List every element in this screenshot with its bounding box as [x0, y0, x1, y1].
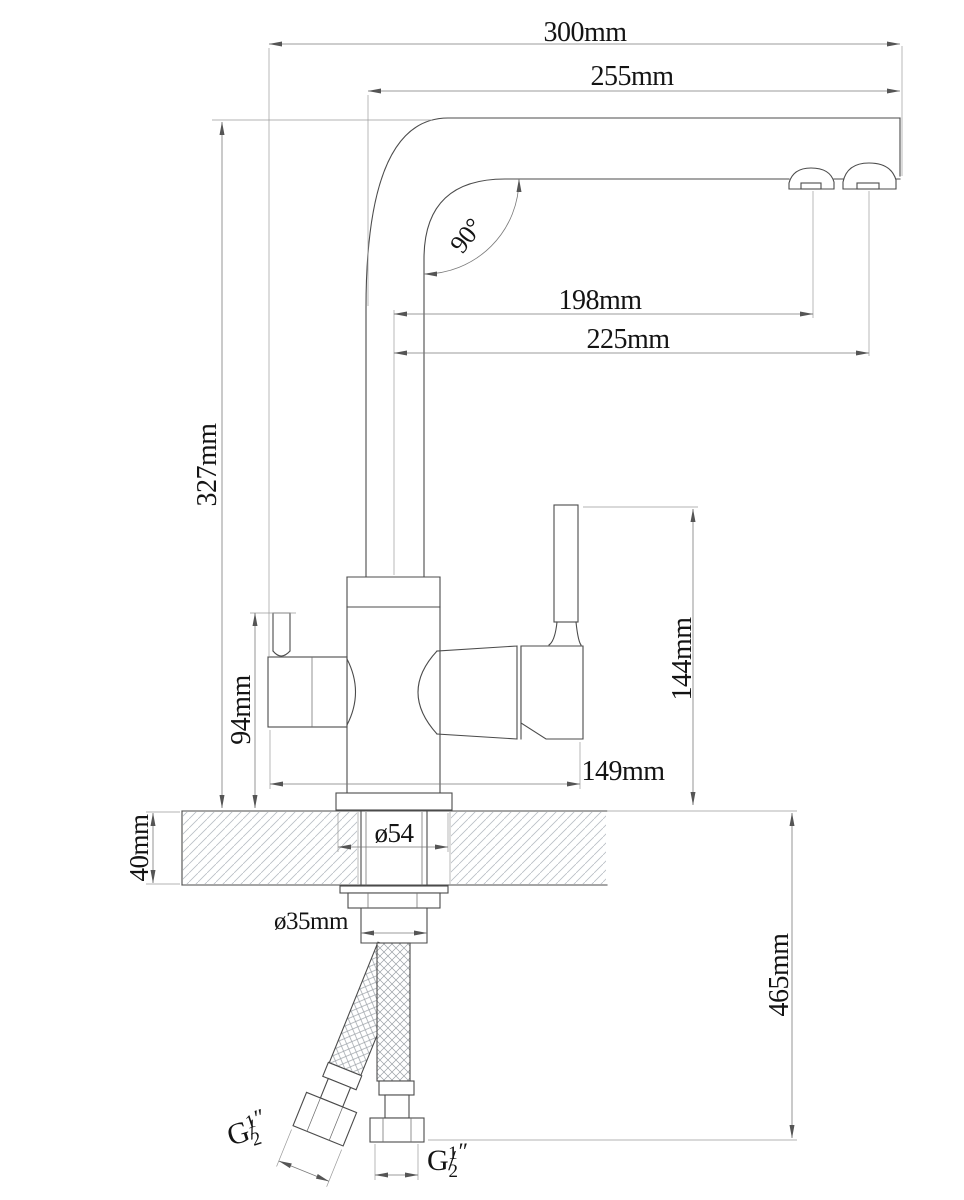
thread-left-denominator: 2	[249, 1128, 264, 1151]
filter-lever-base-curve	[273, 651, 290, 656]
handle-lever	[554, 505, 578, 622]
dim-text-body-span: 149mm	[581, 756, 665, 787]
filter-valve-body	[268, 657, 347, 727]
ext-lines-body-span	[270, 730, 580, 789]
hose-right-neck	[385, 1095, 409, 1118]
handle-cone	[437, 646, 521, 739]
thread-left-dim-line	[279, 1161, 329, 1181]
dim-text-hose-drop: 465mm	[764, 933, 795, 1017]
body-cap-band	[347, 577, 440, 607]
thread-right-unit: ″	[458, 1139, 467, 1164]
dim-text-overall-width: 300mm	[543, 17, 627, 48]
hose-right-collar	[379, 1081, 414, 1095]
dim-text-spout-angle: 90°	[444, 213, 488, 258]
thread-size-right: G1/2″	[427, 1139, 468, 1182]
aerator-main-outlet	[843, 163, 896, 189]
dimension-annotations: 300mm 255mm 90° 198mm 225mm 327mm 94mm 1…	[124, 17, 902, 1182]
dim-text-spout-reach: 255mm	[590, 61, 674, 92]
hose-right-hex-nut	[370, 1118, 424, 1142]
hose-right-braid	[377, 943, 410, 1081]
dim-text-flange-diameter: ø54	[375, 818, 415, 848]
dim-text-main-offset: 225mm	[586, 324, 670, 355]
hose-right	[370, 943, 424, 1142]
countertop-hatch-left	[183, 812, 357, 884]
thread-right-denominator: 2	[448, 1161, 457, 1182]
countertop-hatch-right	[451, 812, 606, 884]
drawing-page: 300mm 255mm 90° 198mm 225mm 327mm 94mm 1…	[0, 0, 964, 1200]
dim-text-height-above-counter: 327mm	[192, 423, 223, 507]
lower-shank	[361, 908, 427, 943]
supply-hoses	[277, 938, 424, 1186]
dim-text-filtered-offset: 198mm	[558, 285, 642, 316]
mounting-locknut	[348, 893, 440, 908]
filter-lever	[273, 613, 290, 651]
body-column-sides	[347, 577, 440, 793]
hose-left-hex-nut	[293, 1092, 357, 1146]
thread-size-left: G1/2″	[221, 1104, 273, 1157]
thread-right-prefix: G	[427, 1144, 448, 1177]
mounting-washer	[340, 886, 448, 893]
right-junction-arc	[418, 651, 437, 734]
dim-text-counter-thickness: 40mm	[124, 814, 154, 882]
drawing-canvas: 300mm 255mm 90° 198mm 225mm 327mm 94mm 1…	[0, 0, 964, 1200]
dim-text-shank-diameter: ø35mm	[274, 908, 349, 935]
handle-neck	[549, 622, 581, 645]
left-junction-arc	[347, 659, 356, 725]
handle-base	[521, 646, 583, 739]
dim-text-handle-height: 144mm	[667, 617, 698, 701]
base-flange	[336, 793, 452, 810]
aerator-filtered-outlet	[789, 168, 834, 189]
dim-text-valve-height: 94mm	[226, 675, 257, 745]
